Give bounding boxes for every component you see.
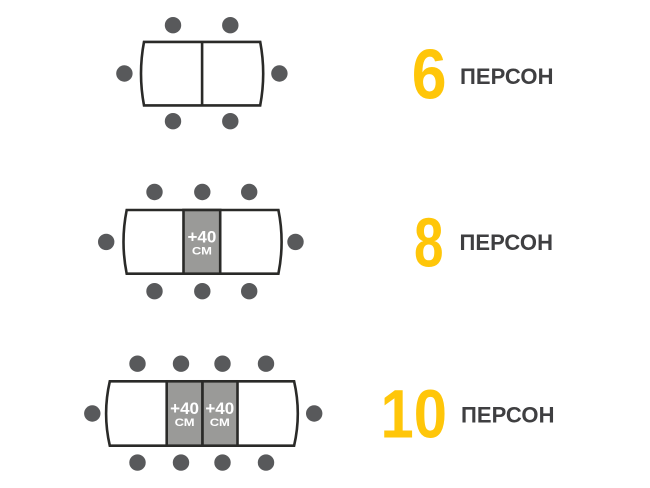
svg-text:ПЕРСОН: ПЕРСОН <box>460 230 554 255</box>
svg-text:СМ: СМ <box>192 245 212 257</box>
svg-text:10: 10 <box>381 375 448 452</box>
svg-text:СМ: СМ <box>175 417 195 429</box>
svg-text:ПЕРСОН: ПЕРСОН <box>461 402 555 427</box>
svg-text:+40: +40 <box>205 399 234 418</box>
svg-text:+40: +40 <box>170 399 199 418</box>
svg-text:6: 6 <box>412 34 447 113</box>
svg-text:8: 8 <box>414 203 444 281</box>
svg-text:+40: +40 <box>187 227 216 246</box>
svg-text:ПЕРСОН: ПЕРСОН <box>460 64 554 89</box>
svg-text:СМ: СМ <box>210 417 230 429</box>
